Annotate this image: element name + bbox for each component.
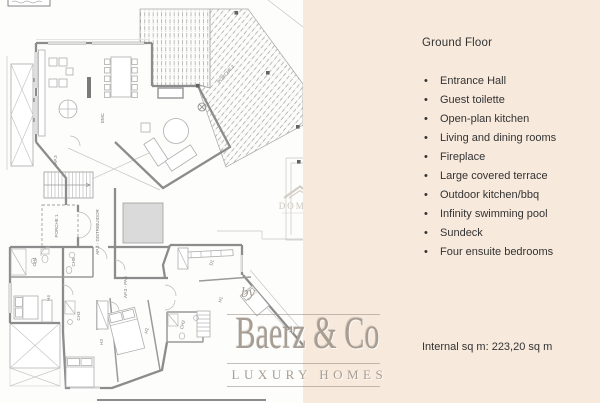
list-item: Sundeck xyxy=(423,224,556,243)
list-item: Entrance Hall xyxy=(423,72,556,91)
room-label: CH2 xyxy=(179,319,186,329)
list-item: Large covered terrace xyxy=(423,167,556,186)
bed-h3 xyxy=(66,357,94,387)
brand-divider-bottom xyxy=(227,386,380,387)
list-item: Four ensuite bedrooms xyxy=(423,243,556,262)
domus-watermark-text: DOMUS xyxy=(279,201,303,211)
room-label: H4 xyxy=(46,295,51,301)
feature-list: Entrance Hall Guest toilette Open-plan k… xyxy=(423,72,556,262)
bed-h4 xyxy=(14,296,38,319)
brochure-page: EMC AP.3 PORCHE 1 AP.3 - DISTRIBUIDOR AP… xyxy=(0,0,600,403)
pool-steps xyxy=(197,311,210,337)
title-block xyxy=(8,0,50,6)
brand-watermark: by Baerz & Co LUXURY HOMES xyxy=(227,286,380,392)
list-item: Fireplace xyxy=(423,148,556,167)
room-label: CH5 xyxy=(71,257,76,266)
brand-name: Baerz & Co xyxy=(235,307,371,359)
room-label: H2 xyxy=(143,327,149,334)
room-label: EMC xyxy=(100,112,105,123)
room-label: AP.3 - PAS xyxy=(123,276,128,298)
room-label: AP.3 xyxy=(53,155,58,165)
staircase xyxy=(44,172,93,198)
list-item: Living and dining rooms xyxy=(423,129,556,148)
wardrobe-d1 xyxy=(181,250,233,259)
room-label: CH4 xyxy=(32,257,37,266)
list-item: Open-plan kitchen xyxy=(423,110,556,129)
list-item: Guest toilette xyxy=(423,91,556,110)
brand-tagline: LUXURY HOMES xyxy=(227,367,380,383)
room-label: H1 xyxy=(217,296,223,303)
page-title: Ground Floor xyxy=(422,37,492,49)
internal-area-text: Internal sq m: 223,20 sq m xyxy=(422,341,552,353)
list-item: Infinity swimming pool xyxy=(423,205,556,224)
room-label: CH3 xyxy=(76,311,81,320)
patio-square xyxy=(123,203,163,243)
fireplace-tv-wall xyxy=(87,77,91,98)
brand-by-label: by xyxy=(241,285,255,302)
room-label: AP.3 - DISTRIBUIDOR xyxy=(95,209,100,255)
list-item: Outdoor kitchen/bbq xyxy=(423,186,556,205)
porch-outline xyxy=(42,205,78,247)
room-label: D1 xyxy=(208,259,214,266)
room-label: PORCHE 1 xyxy=(54,214,59,238)
room-label: H3 xyxy=(99,339,104,345)
brand-divider-middle xyxy=(227,363,380,364)
bed-h2 xyxy=(107,307,144,355)
